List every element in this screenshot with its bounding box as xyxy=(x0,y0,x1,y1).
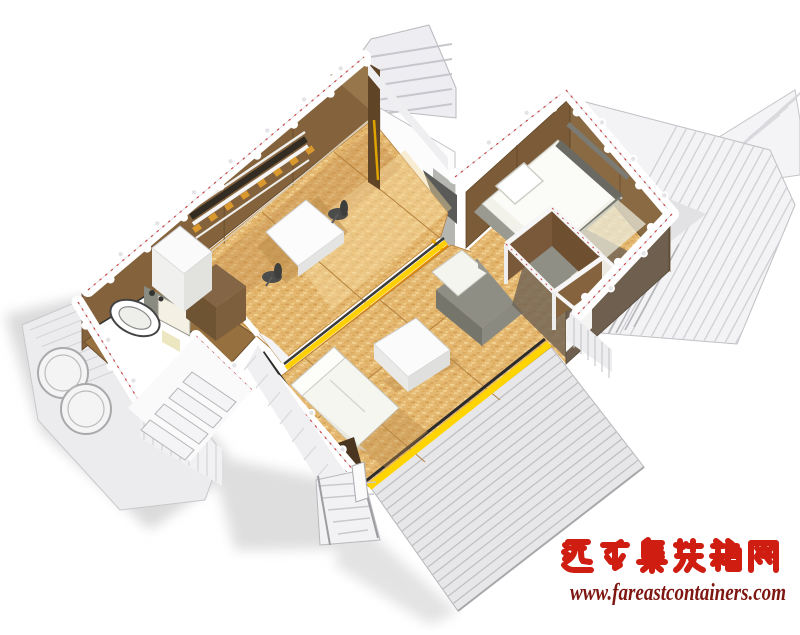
svg-text:www.fareastcontainers.com: www.fareastcontainers.com xyxy=(570,580,786,606)
